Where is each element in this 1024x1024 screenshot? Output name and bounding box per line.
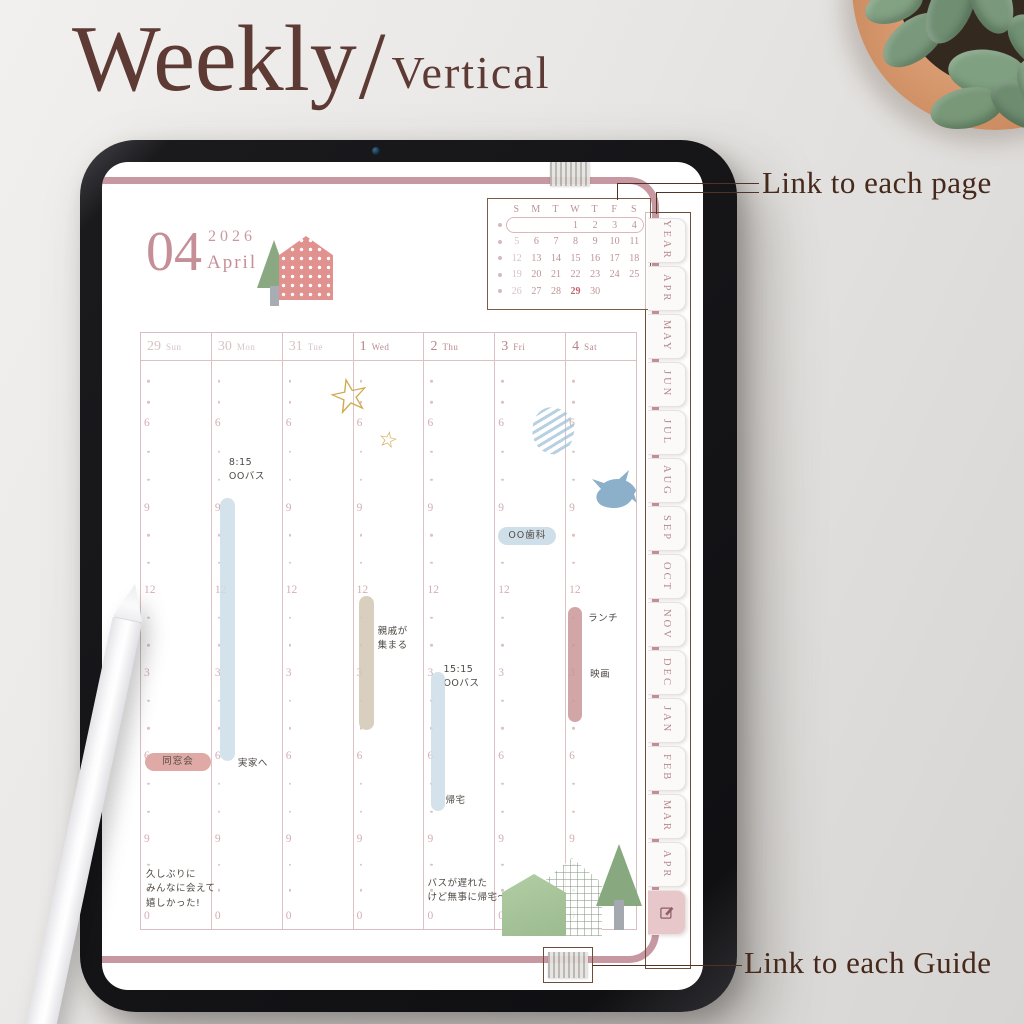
hour-tick-dot: [501, 699, 504, 702]
tab-label: JUL: [661, 419, 672, 446]
mini-calendar-date[interactable]: 26: [507, 286, 527, 297]
day-name: Wed: [372, 342, 390, 352]
handwritten-note: 帰宅: [445, 794, 465, 808]
mini-calendar-date[interactable]: 3: [605, 220, 625, 231]
mini-calendar-date[interactable]: 25: [624, 269, 644, 280]
time-label: 6: [215, 417, 221, 429]
event-time-bar: [568, 607, 582, 722]
bird-icon: [590, 468, 638, 517]
day-header-mon[interactable]: 30Mon: [212, 333, 282, 361]
hour-tick-dot: [218, 864, 221, 867]
mini-calendar-date[interactable]: 13: [527, 253, 547, 264]
time-label: 12: [286, 584, 298, 596]
hour-tick-dot: [501, 644, 504, 647]
time-label: 6: [498, 417, 504, 429]
callout-line-pages-1: [617, 183, 759, 184]
hour-tick-dot: [360, 478, 363, 481]
hour-tick-dot: [218, 401, 221, 404]
month-year: 2026: [208, 228, 256, 246]
event-time-bar: [220, 498, 235, 761]
week-column-wed: 1Wed69123690親戚が集まる: [354, 333, 425, 929]
hour-tick-dot: [430, 810, 433, 813]
day-column-mon[interactable]: 691236908:15OOバス実家へ: [212, 361, 282, 929]
day-date: 2: [430, 339, 437, 355]
hour-tick-dot: [430, 450, 433, 453]
month-number[interactable]: 04: [146, 220, 202, 284]
hour-tick-dot: [572, 810, 575, 813]
mini-calendar-date[interactable]: 24: [605, 269, 625, 280]
title-separator: /: [359, 12, 386, 119]
hour-tick-dot: [501, 380, 504, 383]
callout-connector-tabs: [656, 192, 657, 214]
hour-tick-dot: [147, 864, 150, 867]
calendar-day-header: S: [507, 204, 527, 215]
time-label: 6: [498, 750, 504, 762]
mini-calendar-date[interactable]: 2: [585, 220, 605, 231]
hour-tick-dot: [289, 616, 292, 619]
mini-calendar-week-row[interactable]: 1234: [493, 217, 644, 234]
tablet-device: 04 2026 April SMTWTFS 123456789101112131…: [80, 140, 737, 1012]
hour-tick-dot: [430, 401, 433, 404]
day-name: Sat: [584, 342, 597, 352]
hour-tick-dot: [501, 783, 504, 786]
week-column-sun: 29Sun69123690同窓会久しぶりにみんなに会えて嬉しかった!: [141, 333, 212, 929]
time-label: 9: [286, 833, 292, 845]
calendar-day-header: M: [527, 204, 547, 215]
calendar-day-header: T: [546, 204, 566, 215]
hour-tick-dot: [572, 380, 575, 383]
day-column-thu[interactable]: 6912369015:15OOバス帰宅バスが遅れたけど無事に帰宅〜: [424, 361, 494, 929]
day-header-sun[interactable]: 29Sun: [141, 333, 211, 361]
hour-tick-dot: [218, 783, 221, 786]
day-name: Thu: [442, 342, 458, 352]
time-label: 9: [427, 833, 433, 845]
tab-oct[interactable]: OCT: [648, 554, 686, 599]
hour-tick-dot: [147, 699, 150, 702]
time-label: 9: [569, 833, 575, 845]
day-header-thu[interactable]: 2Thu: [424, 333, 494, 361]
mini-calendar-date[interactable]: 9: [585, 236, 605, 247]
hour-tick-dot: [147, 783, 150, 786]
hour-tick-dot: [147, 450, 150, 453]
tab-label: OCT: [661, 562, 672, 592]
tab-may[interactable]: MAY: [648, 314, 686, 359]
tab-jun[interactable]: JUN: [648, 362, 686, 407]
tab-jul[interactable]: JUL: [648, 410, 686, 455]
tab-label: JUN: [661, 370, 672, 398]
handwritten-note: 久しぶりにみんなに会えて嬉しかった!: [146, 868, 216, 911]
mini-calendar-date[interactable]: 27: [527, 286, 547, 297]
guide-callout-box: [543, 947, 593, 983]
hour-tick-dot: [501, 889, 504, 892]
hour-tick-dot: [147, 401, 150, 404]
hour-tick-dot: [218, 380, 221, 383]
tablet-screen[interactable]: 04 2026 April SMTWTFS 123456789101112131…: [102, 162, 703, 990]
mini-calendar-week-row[interactable]: 12131415161718: [493, 250, 644, 267]
tab-label: NOV: [661, 609, 672, 641]
hour-tick-dot: [360, 889, 363, 892]
time-label: 6: [286, 417, 292, 429]
hour-tick-dot: [572, 401, 575, 404]
tab-label: APR: [661, 274, 672, 303]
hour-tick-dot: [289, 644, 292, 647]
tab-feb[interactable]: FEB: [648, 746, 686, 791]
time-label: 9: [498, 833, 504, 845]
page-title: Weekly/Vertical: [72, 2, 550, 113]
tree-decoration-2: [596, 844, 642, 930]
hour-tick-dot: [289, 864, 292, 867]
time-label: 0: [215, 910, 221, 922]
hour-tick-dot: [289, 478, 292, 481]
hour-tick-dot: [572, 450, 575, 453]
hour-tick-dot: [360, 534, 363, 537]
hour-tick-dot: [289, 727, 292, 730]
hour-tick-dot: [289, 810, 292, 813]
hour-tick-dot: [218, 889, 221, 892]
time-label: 6: [427, 417, 433, 429]
mini-calendar-header: SMTWTFS: [507, 204, 644, 215]
hour-tick-dot: [147, 810, 150, 813]
hour-tick-dot: [501, 401, 504, 404]
hour-tick-dot: [572, 561, 575, 564]
event-time-bar: [359, 596, 374, 729]
mini-calendar-date[interactable]: 4: [624, 220, 644, 231]
day-header-fri[interactable]: 3Fri: [495, 333, 565, 361]
annotation-link-guide: Link to each Guide: [744, 945, 991, 981]
tab-apr-current[interactable]: APR: [648, 266, 686, 311]
washi-tape-top[interactable]: [550, 162, 590, 186]
week-link-dot[interactable]: [493, 289, 507, 293]
day-header-tue[interactable]: 31Tue: [283, 333, 353, 361]
mini-calendar-date[interactable]: 20: [527, 269, 547, 280]
hour-tick-dot: [360, 783, 363, 786]
mini-calendar-body: 1234567891011121314151617181920212223242…: [493, 217, 644, 300]
mini-calendar-date[interactable]: 10: [605, 236, 625, 247]
edit-pencil-icon: [659, 905, 674, 920]
mini-calendar-date[interactable]: 11: [624, 236, 644, 247]
time-label: 9: [569, 502, 575, 514]
day-date: 4: [572, 339, 579, 355]
mini-calendar-date[interactable]: 19: [507, 269, 527, 280]
time-label: 6: [569, 750, 575, 762]
hour-tick-dot: [289, 450, 292, 453]
day-date: 1: [360, 339, 367, 355]
week-column-sat: 4Sat69123690ランチ映画: [566, 333, 636, 929]
day-header-wed[interactable]: 1Wed: [354, 333, 424, 361]
annotation-link-pages: Link to each page: [762, 165, 992, 201]
tab-nov[interactable]: NOV: [648, 602, 686, 647]
mini-calendar-date[interactable]: 6: [527, 236, 547, 247]
handwritten-note: 親戚が集まる: [378, 625, 408, 654]
hour-tick-dot: [572, 783, 575, 786]
tab-mar[interactable]: MAR: [648, 794, 686, 839]
hour-tick-dot: [147, 644, 150, 647]
hour-tick-dot: [501, 810, 504, 813]
time-label: 3: [498, 667, 504, 679]
hour-tick-dot: [360, 450, 363, 453]
tab-label: MAY: [661, 320, 672, 353]
mini-calendar-date[interactable]: 30: [585, 286, 605, 297]
time-label: 12: [569, 584, 581, 596]
month-tab-strip: YEARAPRMAYJUNJULAUGSEPOCTNOVDECJANFEBMAR…: [648, 218, 686, 935]
hour-tick-dot: [147, 534, 150, 537]
hour-tick-dot: [147, 561, 150, 564]
event-highlight-pill: OO歯科: [498, 527, 556, 545]
time-label: 0: [144, 910, 150, 922]
time-label: 9: [357, 502, 363, 514]
mini-calendar-date[interactable]: 16: [585, 253, 605, 264]
week-column-mon: 30Mon691236908:15OOバス実家へ: [212, 333, 283, 929]
time-label: 9: [498, 502, 504, 514]
day-name: Sun: [166, 342, 182, 352]
day-name: Fri: [513, 342, 525, 352]
time-label: 9: [144, 833, 150, 845]
time-label: 12: [357, 584, 369, 596]
tab-jan[interactable]: JAN: [648, 698, 686, 743]
day-date: 30: [218, 339, 232, 355]
time-label: 3: [286, 667, 292, 679]
mini-calendar-date[interactable]: 15: [566, 253, 586, 264]
callout-line-pages-2: [656, 192, 759, 193]
handwritten-note: 15:15OOバス: [443, 663, 479, 692]
mini-calendar-date[interactable]: 1: [566, 220, 586, 231]
hour-tick-dot: [501, 478, 504, 481]
hour-tick-dot: [501, 450, 504, 453]
hour-tick-dot: [430, 478, 433, 481]
mini-calendar-date[interactable]: 17: [605, 253, 625, 264]
week-link-dot[interactable]: [493, 256, 507, 260]
hour-tick-dot: [360, 810, 363, 813]
hour-tick-dot: [430, 534, 433, 537]
tab-label: AUG: [661, 465, 672, 497]
hour-tick-dot: [218, 450, 221, 453]
callout-connector-calendar: [617, 183, 618, 200]
time-label: 9: [357, 833, 363, 845]
mini-calendar-date[interactable]: 18: [624, 253, 644, 264]
time-label: 6: [357, 750, 363, 762]
day-header-sat[interactable]: 4Sat: [566, 333, 636, 361]
tab-dec[interactable]: DEC: [648, 650, 686, 695]
plant-pot: [846, 0, 1024, 140]
time-label: 0: [357, 910, 363, 922]
tab-label: YEAR: [661, 220, 672, 261]
time-label: 0: [286, 910, 292, 922]
hour-tick-dot: [289, 561, 292, 564]
edit-tab[interactable]: [648, 890, 686, 935]
hour-tick-dot: [430, 561, 433, 564]
handwritten-note: 映画: [590, 668, 610, 682]
week-link-dot[interactable]: [493, 223, 507, 227]
camera-icon: [372, 147, 380, 155]
handwritten-note: 実家へ: [238, 757, 268, 771]
hour-tick-dot: [218, 810, 221, 813]
day-date: 3: [501, 339, 508, 355]
mini-calendar-date[interactable]: 29: [566, 286, 586, 297]
title-sub: Vertical: [391, 47, 550, 98]
hour-tick-dot: [501, 864, 504, 867]
hour-tick-dot: [289, 534, 292, 537]
mini-calendar-date[interactable]: 8: [566, 236, 586, 247]
hour-tick-dot: [572, 727, 575, 730]
mini-calendar-date[interactable]: 21: [546, 269, 566, 280]
hour-tick-dot: [289, 401, 292, 404]
hour-tick-dot: [430, 380, 433, 383]
hour-tick-dot: [147, 380, 150, 383]
time-label: 12: [498, 584, 510, 596]
tab-label: DEC: [661, 658, 672, 688]
time-label: 9: [427, 502, 433, 514]
mini-calendar-date[interactable]: 22: [566, 269, 586, 280]
hour-tick-dot: [572, 478, 575, 481]
month-name[interactable]: April: [207, 252, 257, 274]
mini-calendar-date[interactable]: 12: [507, 253, 527, 264]
desk-background: Weekly/Vertical 04 2026 April SMTWTFS 12…: [0, 0, 1024, 1024]
tab-label: APR: [661, 850, 672, 879]
week-column-thu: 2Thu6912369015:15OOバス帰宅バスが遅れたけど無事に帰宅〜: [424, 333, 495, 929]
day-name: Mon: [237, 342, 256, 352]
hour-tick-dot: [572, 534, 575, 537]
calendar-day-header: S: [624, 204, 644, 215]
hour-tick-dot: [289, 380, 292, 383]
hour-tick-dot: [501, 616, 504, 619]
tab-sep[interactable]: SEP: [648, 506, 686, 551]
tab-apr[interactable]: APR: [648, 842, 686, 887]
time-label: 9: [144, 502, 150, 514]
day-name: Tue: [308, 342, 323, 352]
event-time-bar: [431, 672, 445, 812]
mini-calendar-week-row[interactable]: 567891011: [493, 234, 644, 251]
hour-tick-dot: [289, 889, 292, 892]
hour-tick-dot: [147, 727, 150, 730]
mini-calendar-date[interactable]: 7: [546, 236, 566, 247]
hour-tick-dot: [289, 699, 292, 702]
time-label: 3: [144, 667, 150, 679]
event-highlight-pill: 同窓会: [145, 753, 211, 771]
handwritten-note: 8:15OOバス: [229, 456, 265, 485]
hour-tick-dot: [360, 864, 363, 867]
time-label: 12: [427, 584, 439, 596]
day-date: 31: [289, 339, 303, 355]
title-main: Weekly: [72, 7, 357, 111]
mini-calendar-date[interactable]: 23: [585, 269, 605, 280]
time-label: 9: [215, 833, 221, 845]
mini-calendar-week-row[interactable]: 2627282930: [493, 283, 644, 300]
time-label: 0: [427, 910, 433, 922]
hour-tick-dot: [218, 478, 221, 481]
day-column-tue[interactable]: 69123690: [283, 361, 353, 929]
calendar-day-header: F: [605, 204, 625, 215]
time-label: 9: [286, 502, 292, 514]
hour-tick-dot: [147, 478, 150, 481]
mini-calendar-week-row[interactable]: 19202122232425: [493, 267, 644, 284]
tab-year[interactable]: YEAR: [648, 218, 686, 263]
hour-tick-dot: [430, 616, 433, 619]
hour-tick-dot: [501, 561, 504, 564]
week-link-dot[interactable]: [493, 273, 507, 277]
handwritten-note: ランチ: [588, 612, 618, 626]
hour-tick-dot: [430, 864, 433, 867]
mini-calendar[interactable]: SMTWTFS 12345678910111213141516171819202…: [487, 198, 651, 310]
hour-tick-dot: [360, 561, 363, 564]
calendar-day-header: T: [585, 204, 605, 215]
tab-label: FEB: [661, 754, 672, 782]
day-date: 29: [147, 339, 161, 355]
hour-tick-dot: [147, 616, 150, 619]
callout-line-guide: [592, 965, 742, 966]
tab-label: SEP: [661, 515, 672, 542]
hour-tick-dot: [289, 783, 292, 786]
week-link-dot[interactable]: [493, 240, 507, 244]
tab-label: MAR: [661, 800, 672, 833]
hour-tick-dot: [501, 727, 504, 730]
mini-calendar-date[interactable]: 14: [546, 253, 566, 264]
calendar-day-header: W: [566, 204, 586, 215]
hour-tick-dot: [430, 644, 433, 647]
time-label: 6: [286, 750, 292, 762]
mini-calendar-date[interactable]: 5: [507, 236, 527, 247]
tab-aug[interactable]: AUG: [648, 458, 686, 503]
day-column-sun[interactable]: 69123690同窓会久しぶりにみんなに会えて嬉しかった!: [141, 361, 211, 929]
mini-calendar-date[interactable]: 28: [546, 286, 566, 297]
tab-label: JAN: [661, 706, 672, 734]
time-label: 6: [144, 417, 150, 429]
